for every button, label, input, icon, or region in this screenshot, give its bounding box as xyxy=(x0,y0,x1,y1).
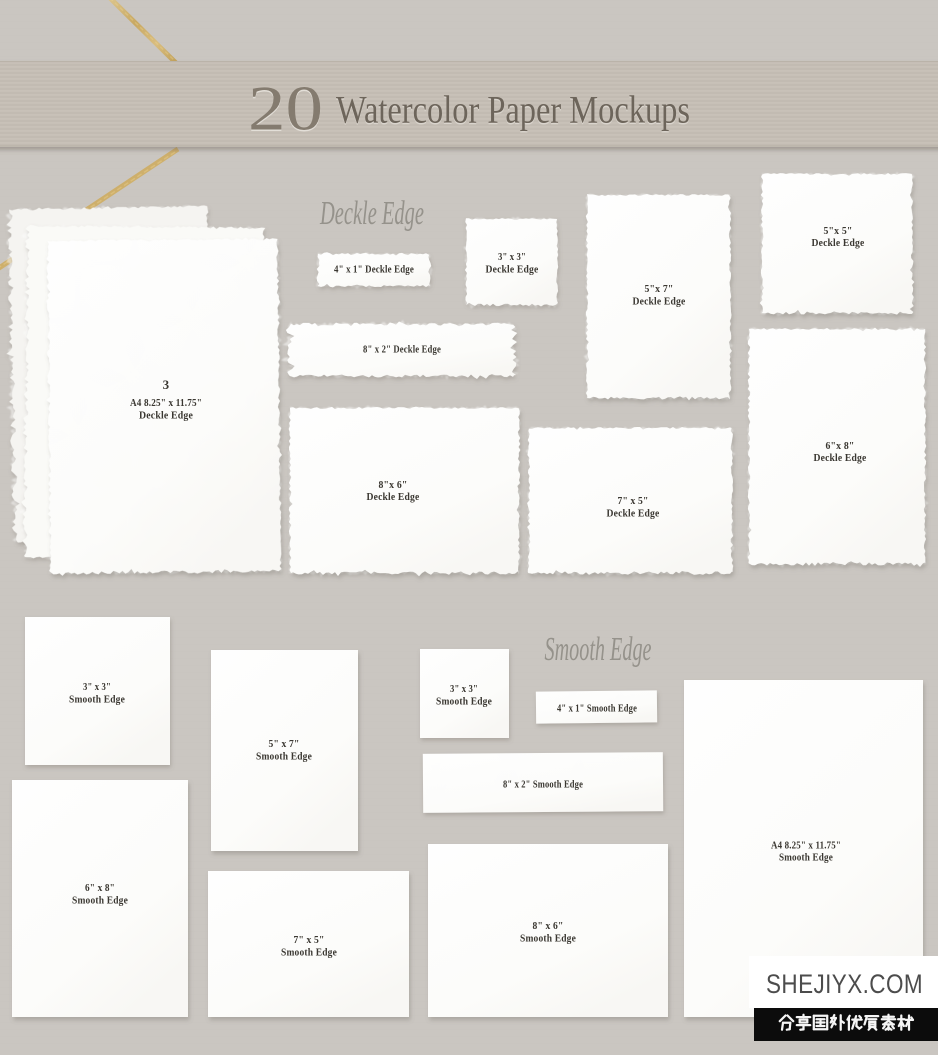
svg-text:3" x 3": 3" x 3" xyxy=(83,682,111,693)
svg-text:A4 8.25" x 11.75": A4 8.25" x 11.75" xyxy=(130,398,202,409)
svg-text:7" x 5": 7" x 5" xyxy=(618,496,649,507)
svg-text:Deckle Edge: Deckle Edge xyxy=(486,265,539,276)
svg-text:3: 3 xyxy=(163,377,170,392)
svg-text:5"x 7": 5"x 7" xyxy=(645,284,674,295)
svg-text:Deckle Edge: Deckle Edge xyxy=(319,195,424,232)
svg-text:3" x 3": 3" x 3" xyxy=(498,252,526,263)
svg-text:Watercolor Paper Mockups: Watercolor Paper Mockups xyxy=(336,89,690,132)
svg-text:Smooth Edge: Smooth Edge xyxy=(545,631,652,668)
svg-text:Deckle Edge: Deckle Edge xyxy=(139,411,193,422)
svg-text:Smooth Edge: Smooth Edge xyxy=(281,948,337,959)
svg-text:Deckle Edge: Deckle Edge xyxy=(633,297,686,308)
svg-text:8" x 6": 8" x 6" xyxy=(533,921,564,932)
svg-text:6" x 8": 6" x 8" xyxy=(85,883,115,894)
svg-text:Smooth Edge: Smooth Edge xyxy=(69,695,125,706)
svg-text:4" x 1" Deckle Edge: 4" x 1" Deckle Edge xyxy=(334,265,414,276)
svg-text:8" x 2" Smooth Edge: 8" x 2" Smooth Edge xyxy=(503,780,583,791)
svg-text:Smooth Edge: Smooth Edge xyxy=(779,853,833,864)
svg-text:SHEJIYX.COM: SHEJIYX.COM xyxy=(766,969,923,999)
svg-text:A4 8.25" x 11.75": A4 8.25" x 11.75" xyxy=(771,841,841,852)
svg-text:8"x 6": 8"x 6" xyxy=(379,480,408,491)
svg-text:Deckle Edge: Deckle Edge xyxy=(814,453,867,464)
svg-text:7" x 5": 7" x 5" xyxy=(294,935,325,946)
svg-text:8" x 2" Deckle Edge: 8" x 2" Deckle Edge xyxy=(363,345,441,356)
svg-text:Deckle Edge: Deckle Edge xyxy=(812,238,865,249)
svg-text:4" x 1" Smooth Edge: 4" x 1" Smooth Edge xyxy=(557,704,637,715)
svg-text:Smooth Edge: Smooth Edge xyxy=(256,752,312,763)
svg-text:Deckle Edge: Deckle Edge xyxy=(607,509,660,520)
svg-text:Deckle Edge: Deckle Edge xyxy=(367,492,420,503)
svg-text:6"x 8": 6"x 8" xyxy=(826,441,855,452)
svg-text:3" x 3": 3" x 3" xyxy=(450,684,478,695)
svg-text:Smooth Edge: Smooth Edge xyxy=(436,697,492,708)
svg-text:20: 20 xyxy=(248,73,323,144)
svg-text:5"x 5": 5"x 5" xyxy=(824,226,853,237)
svg-text:5" x 7": 5" x 7" xyxy=(269,739,300,750)
svg-text:Smooth Edge: Smooth Edge xyxy=(72,896,128,907)
svg-text:Smooth Edge: Smooth Edge xyxy=(520,934,576,945)
